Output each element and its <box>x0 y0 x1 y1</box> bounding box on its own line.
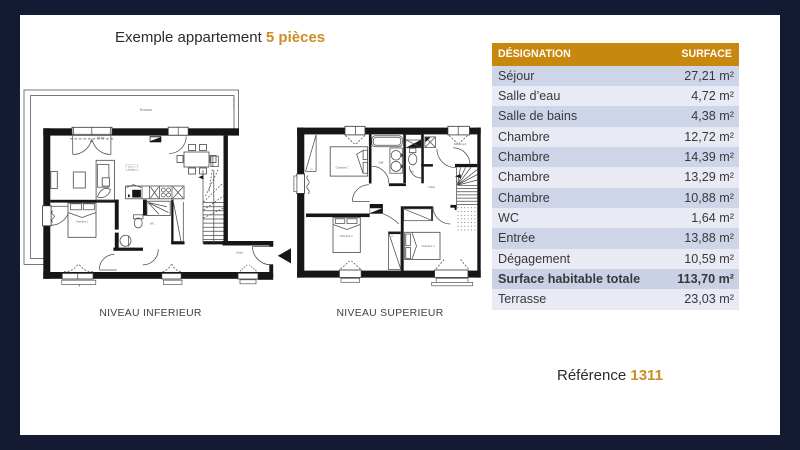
svg-text:Cuisine: Cuisine <box>128 169 136 171</box>
svg-text:Meuble: Meuble <box>97 136 106 139</box>
svg-text:WC: WC <box>150 222 154 226</box>
svg-text:Chambre 4: Chambre 4 <box>422 244 435 248</box>
svg-text:Palier: Palier <box>429 185 436 189</box>
svg-text:SdB: SdB <box>379 161 384 165</box>
svg-text:NIVEAU SUPERIEUR: NIVEAU SUPERIEUR <box>337 308 444 319</box>
svg-text:NIVEAU INFERIEUR: NIVEAU INFERIEUR <box>99 308 202 319</box>
svg-text:Rangement: Rangement <box>454 143 467 146</box>
svg-text:Chambre 2: Chambre 2 <box>336 165 349 169</box>
svg-text:Chambre 3: Chambre 3 <box>340 234 353 238</box>
svg-text:Casier: Casier <box>236 252 243 255</box>
svg-text:PL: PL <box>391 236 394 238</box>
svg-text:Terrasse: Terrasse <box>139 108 152 112</box>
svg-text:Pare vue: Pare vue <box>232 98 236 110</box>
svg-text:PL: PL <box>310 169 313 171</box>
svg-text:Chambre 1: Chambre 1 <box>76 220 89 224</box>
